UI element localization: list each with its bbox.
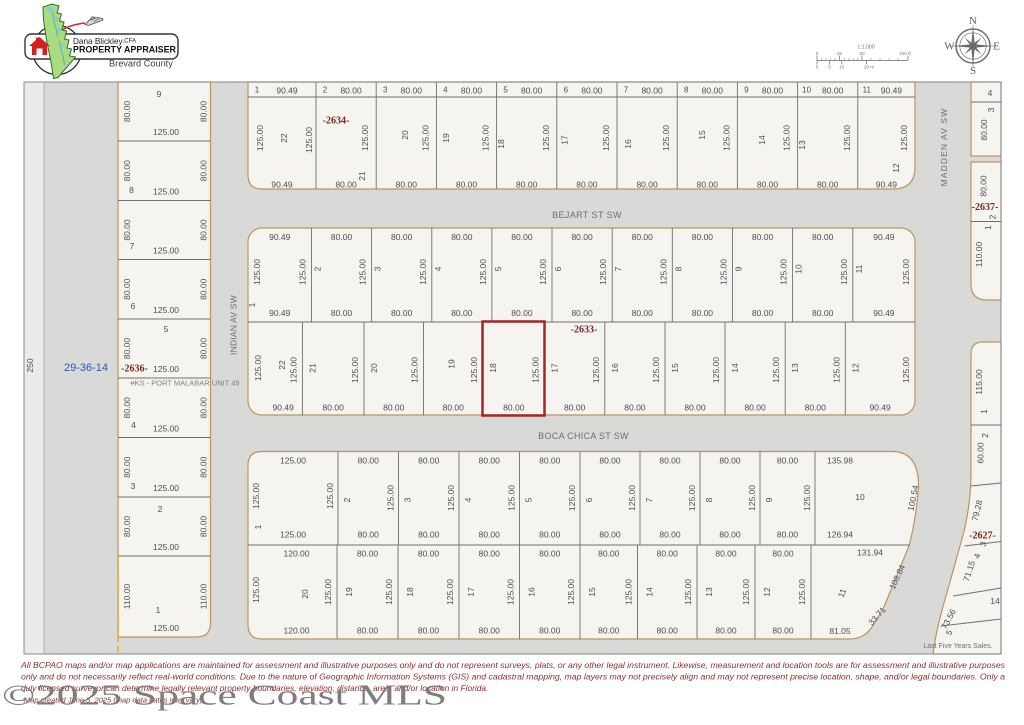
svg-text:6: 6 [131, 301, 136, 311]
svg-text:125.00: 125.00 [741, 579, 751, 605]
svg-text:80.00: 80.00 [511, 232, 533, 242]
svg-text:80.00: 80.00 [122, 338, 132, 360]
svg-text:80.00: 80.00 [418, 530, 440, 540]
svg-text:80.00: 80.00 [636, 180, 658, 190]
svg-text:9: 9 [157, 89, 162, 99]
svg-text:81.05: 81.05 [829, 626, 851, 636]
svg-text:2: 2 [158, 504, 163, 514]
svg-text:5: 5 [164, 324, 169, 334]
svg-text:125.00: 125.00 [153, 246, 179, 256]
svg-text:80.00: 80.00 [657, 549, 679, 559]
svg-text:2: 2 [988, 214, 998, 219]
svg-text:125.00: 125.00 [567, 485, 577, 511]
svg-text:80.00: 80.00 [752, 232, 774, 242]
svg-text:90.49: 90.49 [269, 232, 291, 242]
svg-text:60.00: 60.00 [976, 442, 986, 464]
svg-text:18: 18 [496, 139, 506, 149]
svg-text:80.00: 80.00 [777, 530, 799, 540]
svg-text:125.00: 125.00 [384, 579, 394, 605]
svg-text:16: 16 [623, 139, 633, 149]
svg-text:80.00: 80.00 [979, 119, 989, 141]
svg-text:90.49: 90.49 [873, 308, 895, 318]
svg-text:110.00: 110.00 [974, 242, 984, 268]
svg-text:80.00: 80.00 [772, 626, 794, 636]
svg-text:80.00: 80.00 [199, 101, 209, 123]
svg-text:125.00: 125.00 [478, 259, 488, 285]
svg-text:12: 12 [891, 163, 901, 173]
svg-text:125.00: 125.00 [711, 357, 721, 383]
svg-text:80.00: 80.00 [451, 232, 473, 242]
svg-text:125.00: 125.00 [651, 357, 661, 383]
svg-text:8: 8 [673, 266, 683, 271]
svg-text:S: S [970, 65, 976, 77]
svg-text:125.00: 125.00 [831, 357, 841, 383]
svg-text:80.00: 80.00 [479, 626, 501, 636]
svg-text:115.00: 115.00 [974, 369, 984, 395]
svg-text:80.00: 80.00 [581, 86, 603, 96]
svg-text:19: 19 [447, 359, 457, 369]
svg-text:80.00: 80.00 [479, 549, 501, 559]
svg-text:131.94: 131.94 [857, 548, 883, 558]
svg-text:2: 2 [313, 266, 323, 271]
svg-text:80.00: 80.00 [684, 403, 706, 413]
svg-text:14: 14 [645, 587, 655, 597]
svg-text:125.00: 125.00 [601, 125, 611, 151]
svg-text:250: 250 [25, 358, 35, 372]
svg-text:125.00: 125.00 [566, 579, 576, 605]
svg-text:125.00: 125.00 [386, 485, 396, 511]
svg-text:125.00: 125.00 [661, 125, 671, 151]
svg-text:80.00: 80.00 [396, 180, 418, 190]
svg-text:125.00: 125.00 [252, 259, 262, 285]
svg-text:80.00: 80.00 [702, 86, 724, 96]
svg-text:5: 5 [524, 497, 534, 502]
svg-text:9: 9 [744, 86, 749, 95]
svg-text:125.00: 125.00 [153, 364, 179, 374]
svg-text:4: 4 [131, 420, 136, 430]
svg-text:3: 3 [383, 86, 388, 95]
svg-text:16: 16 [527, 587, 537, 597]
svg-text:50: 50 [859, 51, 865, 56]
svg-text:15: 15 [697, 130, 707, 140]
svg-text:80.00: 80.00 [599, 530, 621, 540]
svg-text:4: 4 [463, 497, 473, 502]
svg-text:7: 7 [624, 86, 629, 95]
svg-text:80.00: 80.00 [383, 403, 405, 413]
svg-text:80.00: 80.00 [812, 308, 834, 318]
svg-text:125.00: 125.00 [304, 127, 314, 153]
svg-text:25: 25 [837, 51, 843, 56]
svg-text:80.00: 80.00 [598, 549, 620, 559]
svg-text:125.00: 125.00 [541, 125, 551, 151]
svg-text:125.00: 125.00 [782, 125, 792, 151]
svg-text:BEJART ST SW: BEJART ST SW [552, 210, 622, 220]
svg-text:-2634-: -2634- [323, 116, 350, 127]
svg-text:80.00: 80.00 [752, 308, 774, 318]
svg-text:80.00: 80.00 [391, 308, 413, 318]
svg-text:125.00: 125.00 [901, 357, 911, 383]
svg-text:80.00: 80.00 [539, 626, 561, 636]
svg-text:125.00: 125.00 [255, 125, 265, 151]
svg-text:120.00: 120.00 [284, 626, 310, 636]
svg-text:90.49: 90.49 [876, 180, 898, 190]
svg-text:All BCPAO maps and/or map appl: All BCPAO maps and/or map applications a… [20, 660, 1006, 670]
svg-text:3: 3 [986, 107, 996, 112]
svg-text:E: E [993, 41, 1000, 53]
svg-text:10: 10 [794, 264, 804, 274]
svg-text:90.49: 90.49 [269, 308, 291, 318]
svg-text:125.00: 125.00 [445, 579, 455, 605]
svg-text:8: 8 [129, 185, 134, 195]
svg-text:125.00: 125.00 [280, 530, 306, 540]
svg-text:3: 3 [373, 266, 383, 271]
svg-text:125.00: 125.00 [721, 125, 731, 151]
svg-text:100 ft: 100 ft [899, 51, 911, 56]
svg-text:125.00: 125.00 [627, 485, 637, 511]
svg-text:80.00: 80.00 [692, 232, 714, 242]
svg-text:18: 18 [488, 363, 498, 373]
svg-text:80.00: 80.00 [521, 86, 543, 96]
svg-text:125.00: 125.00 [507, 485, 517, 511]
svg-text:80.00: 80.00 [715, 549, 737, 559]
svg-text:INDIAN AV SW: INDIAN AV SW [229, 295, 239, 355]
svg-text:80.00: 80.00 [418, 549, 440, 559]
svg-text:7: 7 [613, 266, 623, 271]
svg-text:80.00: 80.00 [122, 101, 132, 123]
svg-text:80.00: 80.00 [122, 397, 132, 419]
svg-text:125.00: 125.00 [506, 579, 516, 605]
svg-text:2: 2 [980, 433, 990, 438]
svg-text:7: 7 [130, 241, 135, 251]
svg-text:125.00: 125.00 [251, 483, 261, 509]
svg-text:80.00: 80.00 [122, 160, 132, 182]
svg-text:125.00: 125.00 [481, 125, 491, 151]
svg-text:Last Five Years Sales.: Last Five Years Sales. [923, 643, 992, 650]
svg-text:10: 10 [839, 65, 845, 70]
svg-text:Brevard County: Brevard County [109, 59, 173, 69]
svg-text:80.00: 80.00 [340, 86, 362, 96]
svg-text:80.00: 80.00 [719, 530, 741, 540]
svg-text:80.00: 80.00 [715, 626, 737, 636]
svg-text:80.00: 80.00 [122, 516, 132, 538]
svg-text:1: 1 [156, 605, 161, 615]
svg-text:80.00: 80.00 [564, 403, 586, 413]
svg-text:125.00: 125.00 [719, 259, 729, 285]
svg-text:14: 14 [757, 135, 767, 145]
svg-text:-2633-: -2633- [571, 325, 598, 336]
svg-text:6: 6 [553, 266, 563, 271]
svg-text:1: 1 [247, 302, 257, 307]
svg-text:125.00: 125.00 [797, 579, 807, 605]
svg-text:80.00: 80.00 [624, 403, 646, 413]
svg-text:19: 19 [344, 587, 354, 597]
svg-text:80.00: 80.00 [812, 232, 834, 242]
svg-text:125.00: 125.00 [418, 259, 428, 285]
svg-text:20: 20 [369, 363, 379, 373]
svg-text:125.00: 125.00 [624, 579, 634, 605]
svg-text:125.00: 125.00 [410, 357, 420, 383]
svg-text:125.00: 125.00 [360, 125, 370, 151]
svg-text:125.00: 125.00 [531, 357, 541, 383]
svg-text:80.00: 80.00 [692, 308, 714, 318]
svg-text:-2636-: -2636- [121, 364, 148, 375]
svg-text:80.00: 80.00 [391, 232, 413, 242]
svg-text:©2025 Space Coast MLS: ©2025 Space Coast MLS [2, 680, 447, 712]
svg-text:80.00: 80.00 [122, 278, 132, 300]
svg-text:125.00: 125.00 [839, 259, 849, 285]
svg-text:80.00: 80.00 [357, 626, 379, 636]
svg-text:5: 5 [828, 65, 831, 70]
svg-text:80.00: 80.00 [358, 530, 380, 540]
svg-text:15: 15 [587, 587, 597, 597]
svg-text:19: 19 [441, 133, 451, 143]
svg-text:2: 2 [342, 497, 352, 502]
svg-text:125.00: 125.00 [687, 485, 697, 511]
svg-text:16: 16 [610, 363, 620, 373]
svg-text:80.00: 80.00 [805, 403, 827, 413]
svg-text:80.00: 80.00 [598, 626, 620, 636]
svg-text:125.00: 125.00 [358, 259, 368, 285]
svg-text:80.00: 80.00 [443, 403, 465, 413]
svg-text:125.00: 125.00 [298, 259, 308, 285]
svg-text:8: 8 [684, 86, 689, 95]
svg-text:20: 20 [300, 589, 310, 599]
svg-text:18: 18 [405, 587, 415, 597]
svg-text:125.00: 125.00 [153, 127, 179, 137]
svg-text:90.49: 90.49 [273, 403, 295, 413]
svg-text:125.00: 125.00 [420, 125, 430, 151]
svg-text:125.00: 125.00 [469, 357, 479, 383]
svg-text:BOCA CHICA ST SW: BOCA CHICA ST SW [538, 431, 629, 441]
svg-text:80.00: 80.00 [199, 278, 209, 300]
svg-text:22: 22 [277, 360, 287, 370]
svg-text:125.00: 125.00 [538, 259, 548, 285]
svg-text:125.00: 125.00 [658, 259, 668, 285]
svg-text:80.00: 80.00 [979, 175, 989, 197]
svg-text:125.00: 125.00 [901, 259, 911, 285]
svg-text:80.00: 80.00 [632, 232, 654, 242]
svg-text:90.49: 90.49 [276, 86, 298, 96]
svg-text:80.00: 80.00 [772, 549, 794, 559]
svg-text:4: 4 [443, 86, 448, 95]
svg-text:1: 1 [253, 524, 263, 529]
svg-text:80.00: 80.00 [777, 456, 799, 466]
svg-text:N: N [969, 15, 977, 27]
svg-text:125.00: 125.00 [842, 125, 852, 151]
svg-text:1: 1 [255, 86, 260, 95]
svg-text:90.49: 90.49 [873, 232, 895, 242]
svg-text:125.00: 125.00 [280, 456, 306, 466]
svg-text:21: 21 [307, 363, 317, 373]
svg-text:80.00: 80.00 [199, 160, 209, 182]
svg-text:6: 6 [564, 86, 569, 95]
svg-text:80.00: 80.00 [632, 308, 654, 318]
svg-text:125.00: 125.00 [153, 623, 179, 633]
svg-text:9: 9 [764, 497, 774, 502]
svg-text:80.00: 80.00 [516, 180, 538, 190]
svg-text:80.00: 80.00 [461, 86, 483, 96]
svg-text:-2627-: -2627- [969, 531, 996, 542]
svg-text:80.00: 80.00 [503, 403, 525, 413]
svg-text:13: 13 [797, 140, 807, 150]
svg-text:80.00: 80.00 [511, 308, 533, 318]
svg-text:125.00: 125.00 [779, 259, 789, 285]
svg-text:MADDEN AV SW: MADDEN AV SW [939, 108, 949, 187]
svg-text:125.00: 125.00 [153, 305, 179, 315]
svg-text:80.00: 80.00 [576, 180, 598, 190]
svg-text:80.00: 80.00 [323, 403, 345, 413]
svg-text:125.00: 125.00 [325, 483, 335, 509]
svg-text:80.00: 80.00 [335, 180, 357, 190]
svg-text:11: 11 [854, 264, 864, 273]
svg-text:110.00: 110.00 [199, 584, 209, 610]
svg-text:13: 13 [704, 587, 714, 597]
svg-text:125.00: 125.00 [253, 355, 263, 381]
svg-text:80.00: 80.00 [199, 456, 209, 478]
svg-text:80.00: 80.00 [539, 456, 561, 466]
svg-text:80.00: 80.00 [358, 456, 380, 466]
svg-text:80.00: 80.00 [357, 549, 379, 559]
svg-text:7: 7 [644, 497, 654, 502]
svg-text:80.00: 80.00 [822, 86, 844, 96]
svg-text:4: 4 [433, 266, 443, 271]
svg-text:125.00: 125.00 [323, 579, 333, 605]
svg-text:125.00: 125.00 [153, 542, 179, 552]
svg-text:80.00: 80.00 [401, 86, 423, 96]
svg-text:80.00: 80.00 [199, 219, 209, 241]
svg-text:90.49: 90.49 [870, 403, 892, 413]
svg-text:12: 12 [850, 363, 860, 373]
svg-text:#KS - PORT MALABAR UNIT 49: #KS - PORT MALABAR UNIT 49 [130, 379, 239, 388]
svg-text:-2637-: -2637- [972, 202, 999, 213]
svg-text:90.49: 90.49 [271, 180, 293, 190]
svg-text:2: 2 [323, 86, 328, 95]
svg-text:80.00: 80.00 [451, 308, 473, 318]
svg-text:125.00: 125.00 [747, 485, 757, 511]
svg-text:1:1,000: 1:1,000 [857, 45, 874, 51]
svg-text:1: 1 [983, 225, 993, 230]
svg-text:125.00: 125.00 [251, 577, 261, 603]
svg-text:13: 13 [790, 363, 800, 373]
svg-text:80.00: 80.00 [599, 456, 621, 466]
svg-text:9: 9 [734, 266, 744, 271]
svg-text:80.00: 80.00 [659, 456, 681, 466]
svg-text:80.00: 80.00 [479, 456, 501, 466]
svg-text:125.00: 125.00 [446, 485, 456, 511]
svg-text:80.00: 80.00 [199, 397, 209, 419]
svg-text:125.00: 125.00 [153, 424, 179, 434]
svg-text:80.00: 80.00 [657, 626, 679, 636]
svg-text:80.00: 80.00 [479, 530, 501, 540]
svg-text:80.00: 80.00 [571, 232, 593, 242]
svg-text:125.00: 125.00 [683, 579, 693, 605]
svg-text:1: 1 [979, 409, 989, 414]
svg-text:90.49: 90.49 [881, 86, 903, 96]
svg-text:125.00: 125.00 [802, 485, 812, 511]
svg-text:80.00: 80.00 [122, 219, 132, 241]
svg-text:80.00: 80.00 [456, 180, 478, 190]
svg-text:135.98: 135.98 [827, 456, 853, 466]
svg-text:80.00: 80.00 [418, 626, 440, 636]
svg-text:80.00: 80.00 [539, 530, 561, 540]
svg-text:80.00: 80.00 [199, 338, 209, 360]
svg-text:80.00: 80.00 [331, 232, 353, 242]
svg-text:125.00: 125.00 [288, 357, 298, 383]
svg-text:80.00: 80.00 [122, 456, 132, 478]
svg-text:5: 5 [503, 86, 508, 95]
svg-text:80.00: 80.00 [697, 180, 719, 190]
svg-text:3: 3 [403, 497, 413, 502]
svg-text:125.00: 125.00 [899, 125, 909, 151]
svg-text:125.00: 125.00 [598, 259, 608, 285]
svg-text:W: W [944, 41, 955, 53]
svg-text:120.00: 120.00 [284, 549, 310, 559]
svg-text:15: 15 [670, 363, 680, 373]
svg-text:110.00: 110.00 [122, 584, 132, 610]
svg-text:21: 21 [357, 171, 367, 181]
svg-text:PROPERTY APPRAISER: PROPERTY APPRAISER [73, 45, 176, 56]
svg-text:0: 0 [816, 65, 819, 70]
svg-text:125.00: 125.00 [153, 483, 179, 493]
svg-text:126.94: 126.94 [827, 530, 853, 540]
svg-text:5: 5 [493, 266, 503, 271]
svg-text:80.00: 80.00 [641, 86, 663, 96]
svg-text:80.00: 80.00 [418, 456, 440, 466]
svg-text:10: 10 [855, 492, 865, 502]
svg-text:80.00: 80.00 [757, 180, 779, 190]
svg-text:80.00: 80.00 [539, 549, 561, 559]
svg-text:14: 14 [990, 596, 1000, 606]
svg-text:80.00: 80.00 [744, 403, 766, 413]
svg-text:20: 20 [400, 130, 410, 140]
svg-text:125.00: 125.00 [153, 187, 179, 197]
svg-text:80.00: 80.00 [762, 86, 784, 96]
svg-text:80.00: 80.00 [719, 456, 741, 466]
svg-text:29-36-14: 29-36-14 [64, 362, 108, 374]
svg-text:8: 8 [704, 497, 714, 502]
svg-text:17: 17 [560, 135, 570, 145]
svg-text:80.00: 80.00 [199, 516, 209, 538]
svg-text:80.00: 80.00 [331, 308, 353, 318]
svg-text:17: 17 [550, 363, 560, 373]
svg-text:80.00: 80.00 [659, 530, 681, 540]
svg-text:14: 14 [730, 363, 740, 373]
svg-text:80.00: 80.00 [571, 308, 593, 318]
svg-text:80.00: 80.00 [817, 180, 839, 190]
svg-text:0: 0 [816, 51, 819, 56]
svg-text:4: 4 [988, 88, 993, 98]
svg-text:11: 11 [863, 86, 872, 95]
svg-text:12: 12 [762, 587, 772, 597]
svg-text:20 m: 20 m [864, 65, 874, 70]
svg-text:3: 3 [131, 481, 136, 491]
svg-text:6: 6 [584, 497, 594, 502]
svg-text:125.00: 125.00 [350, 357, 360, 383]
svg-text:17: 17 [466, 587, 476, 597]
svg-text:22: 22 [279, 133, 289, 143]
svg-text:125.00: 125.00 [591, 357, 601, 383]
svg-text:10: 10 [802, 86, 811, 95]
svg-text:125.00: 125.00 [771, 357, 781, 383]
